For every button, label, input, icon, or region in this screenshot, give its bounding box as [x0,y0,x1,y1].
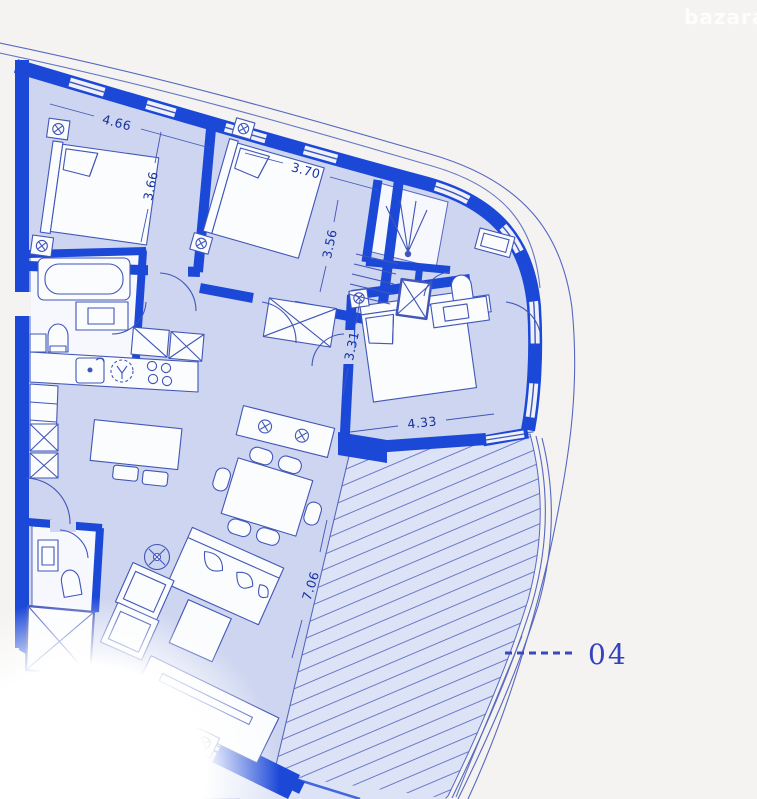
toilet-icon [48,324,68,352]
unit-label: 04 [588,638,628,671]
bathtub-icon [38,258,130,300]
watermark: bazara [684,5,757,29]
dimension-bedroom3-width: 4.33 [407,413,438,431]
washer-icon [30,334,46,352]
shaft-icon [397,279,432,319]
washbasin-icon [38,540,58,571]
nightstand-icon [47,118,70,140]
floor-plan-stage: 4.66 3.66 3.70 3.56 3.31 4.33 7.06 04 ba… [0,0,757,799]
floor-plan-svg: 4.66 3.66 3.70 3.56 3.31 4.33 7.06 04 ba… [0,0,757,799]
nightstand-icon [30,235,53,257]
shaft-icon [30,424,58,478]
vanity-icon [76,302,128,330]
sink-icon [76,358,104,383]
